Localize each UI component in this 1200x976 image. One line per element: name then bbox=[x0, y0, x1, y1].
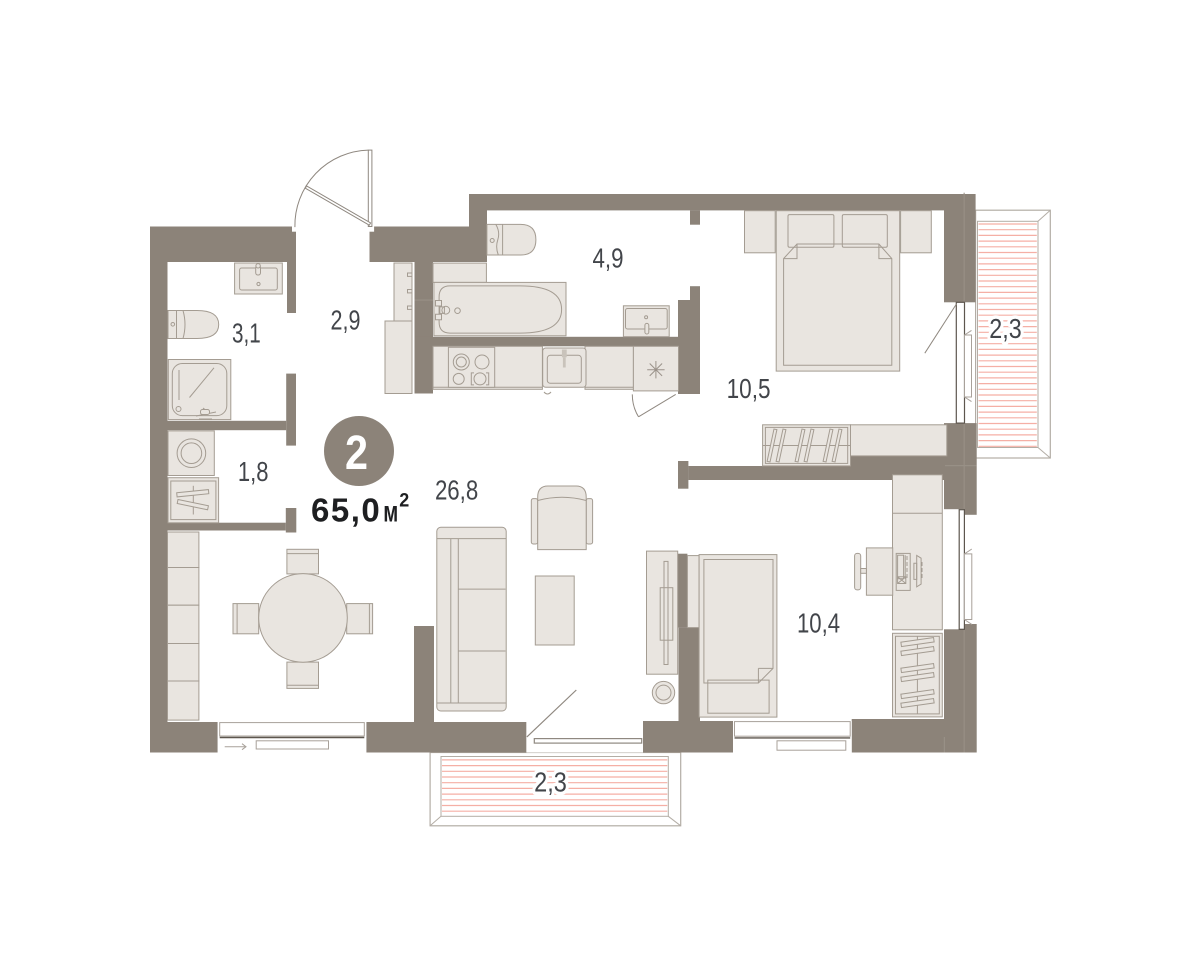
svg-text:2,3: 2,3 bbox=[989, 313, 1021, 344]
svg-text:2,3: 2,3 bbox=[534, 767, 567, 798]
svg-text:26,8: 26,8 bbox=[435, 474, 478, 505]
svg-text:10,4: 10,4 bbox=[797, 608, 840, 639]
svg-text:65,0м2: 65,0м2 bbox=[311, 490, 409, 529]
svg-text:3,1: 3,1 bbox=[232, 318, 261, 349]
svg-text:2: 2 bbox=[345, 427, 368, 480]
svg-text:10,5: 10,5 bbox=[727, 373, 771, 404]
svg-text:4,9: 4,9 bbox=[593, 242, 624, 273]
svg-text:1,8: 1,8 bbox=[238, 456, 269, 487]
svg-text:2,9: 2,9 bbox=[331, 305, 361, 336]
